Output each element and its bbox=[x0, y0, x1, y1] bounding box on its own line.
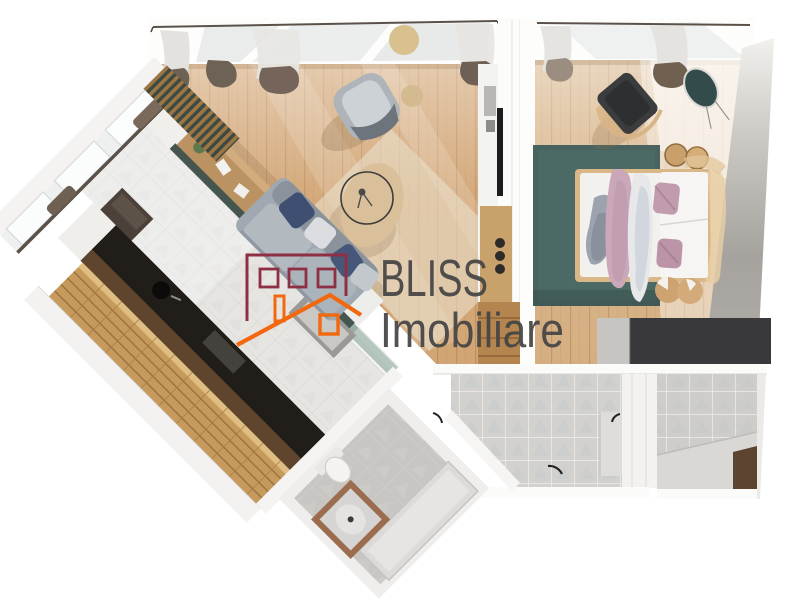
svg-text:BLISS: BLISS bbox=[380, 250, 488, 308]
svg-text:Imobiliare: Imobiliare bbox=[380, 304, 564, 358]
